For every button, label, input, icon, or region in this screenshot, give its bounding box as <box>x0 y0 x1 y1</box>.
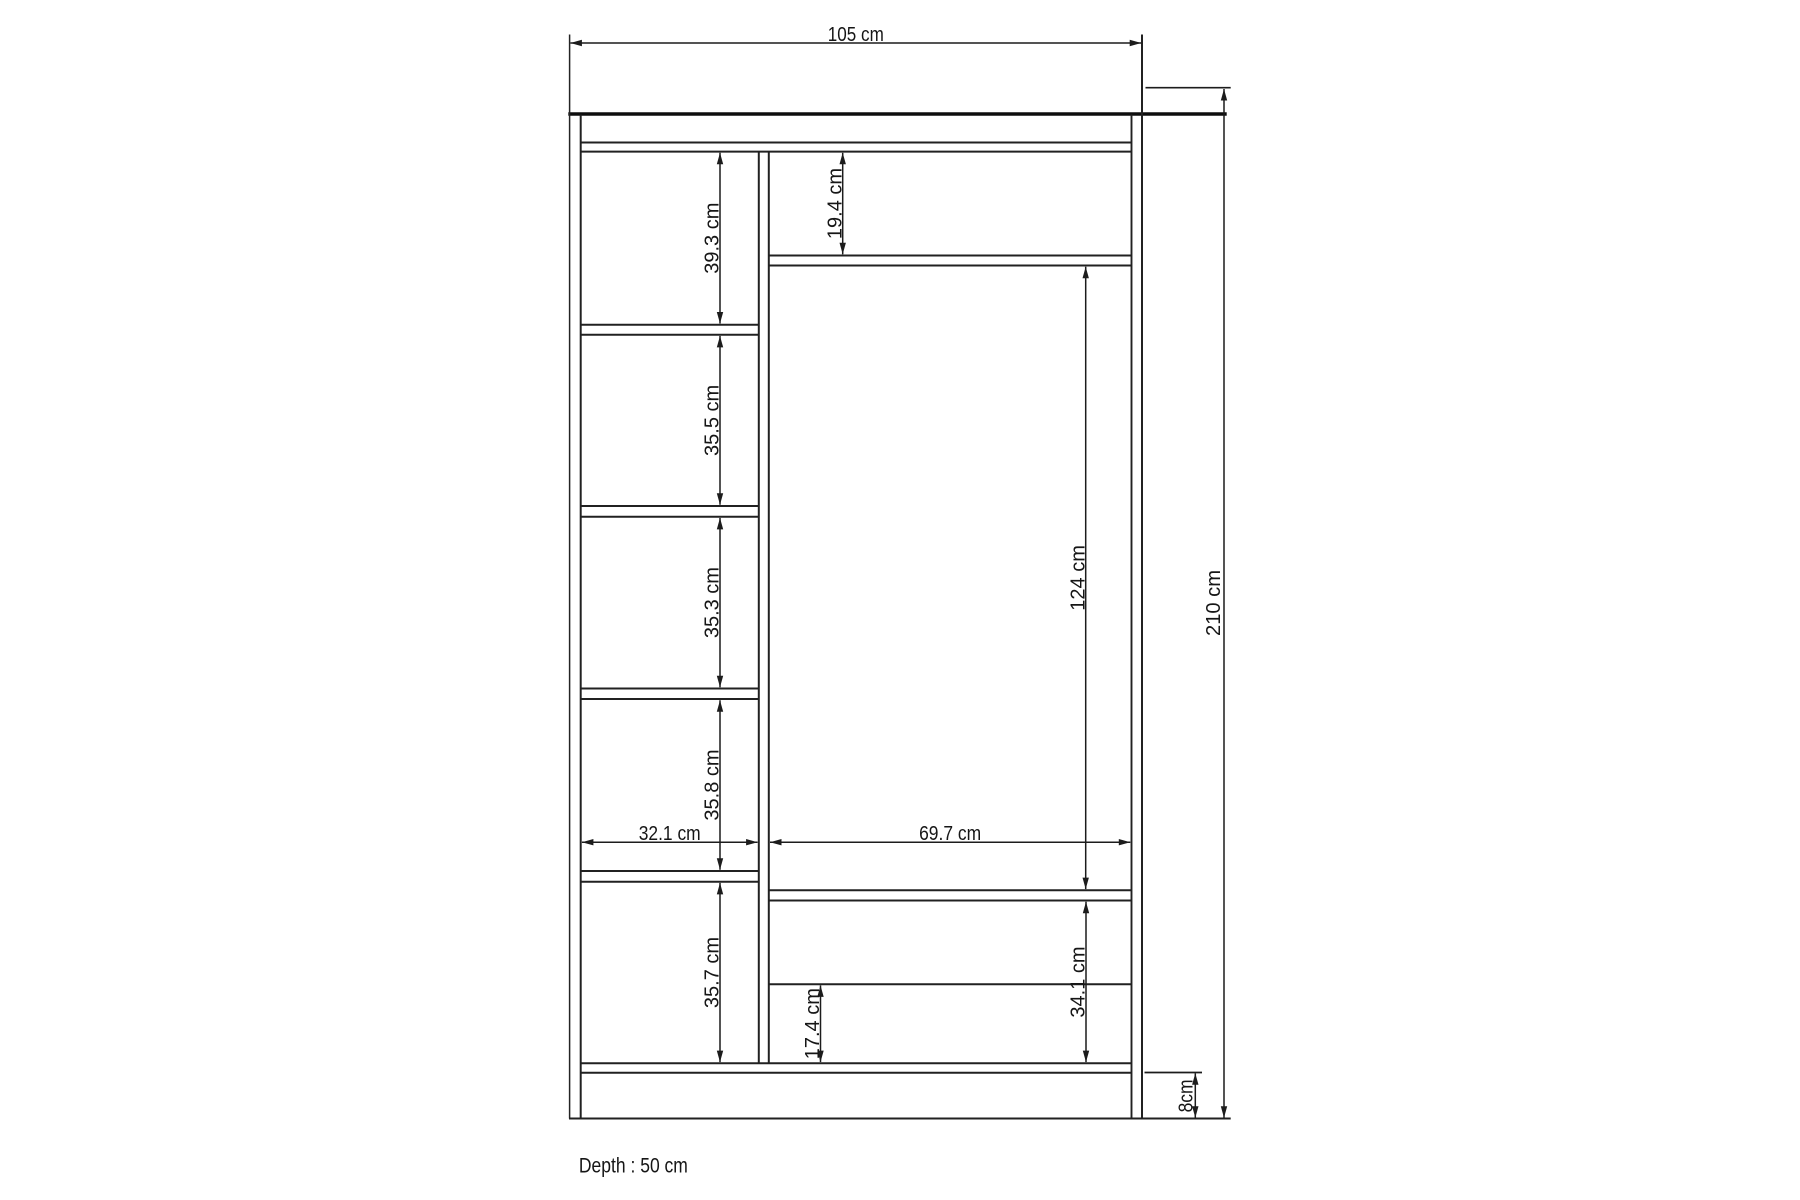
svg-text:35.3 cm: 35.3 cm <box>702 567 724 638</box>
svg-text:39.3 cm: 39.3 cm <box>702 203 724 274</box>
svg-text:210 cm: 210 cm <box>1203 570 1225 636</box>
svg-text:35.5 cm: 35.5 cm <box>702 385 724 456</box>
svg-text:35.7 cm: 35.7 cm <box>702 937 724 1008</box>
svg-text:105 cm: 105 cm <box>828 24 884 46</box>
svg-text:8cm: 8cm <box>1176 1079 1198 1112</box>
svg-text:35.8 cm: 35.8 cm <box>702 749 724 820</box>
svg-text:34.1 cm: 34.1 cm <box>1068 946 1090 1017</box>
svg-text:17.4 cm: 17.4 cm <box>802 988 824 1059</box>
svg-text:Depth : 50 cm: Depth : 50 cm <box>579 1154 688 1177</box>
svg-text:19.4 cm: 19.4 cm <box>824 168 846 239</box>
svg-text:32.1 cm: 32.1 cm <box>639 823 701 845</box>
svg-text:69.7 cm: 69.7 cm <box>919 823 981 845</box>
svg-text:124 cm: 124 cm <box>1067 545 1089 611</box>
